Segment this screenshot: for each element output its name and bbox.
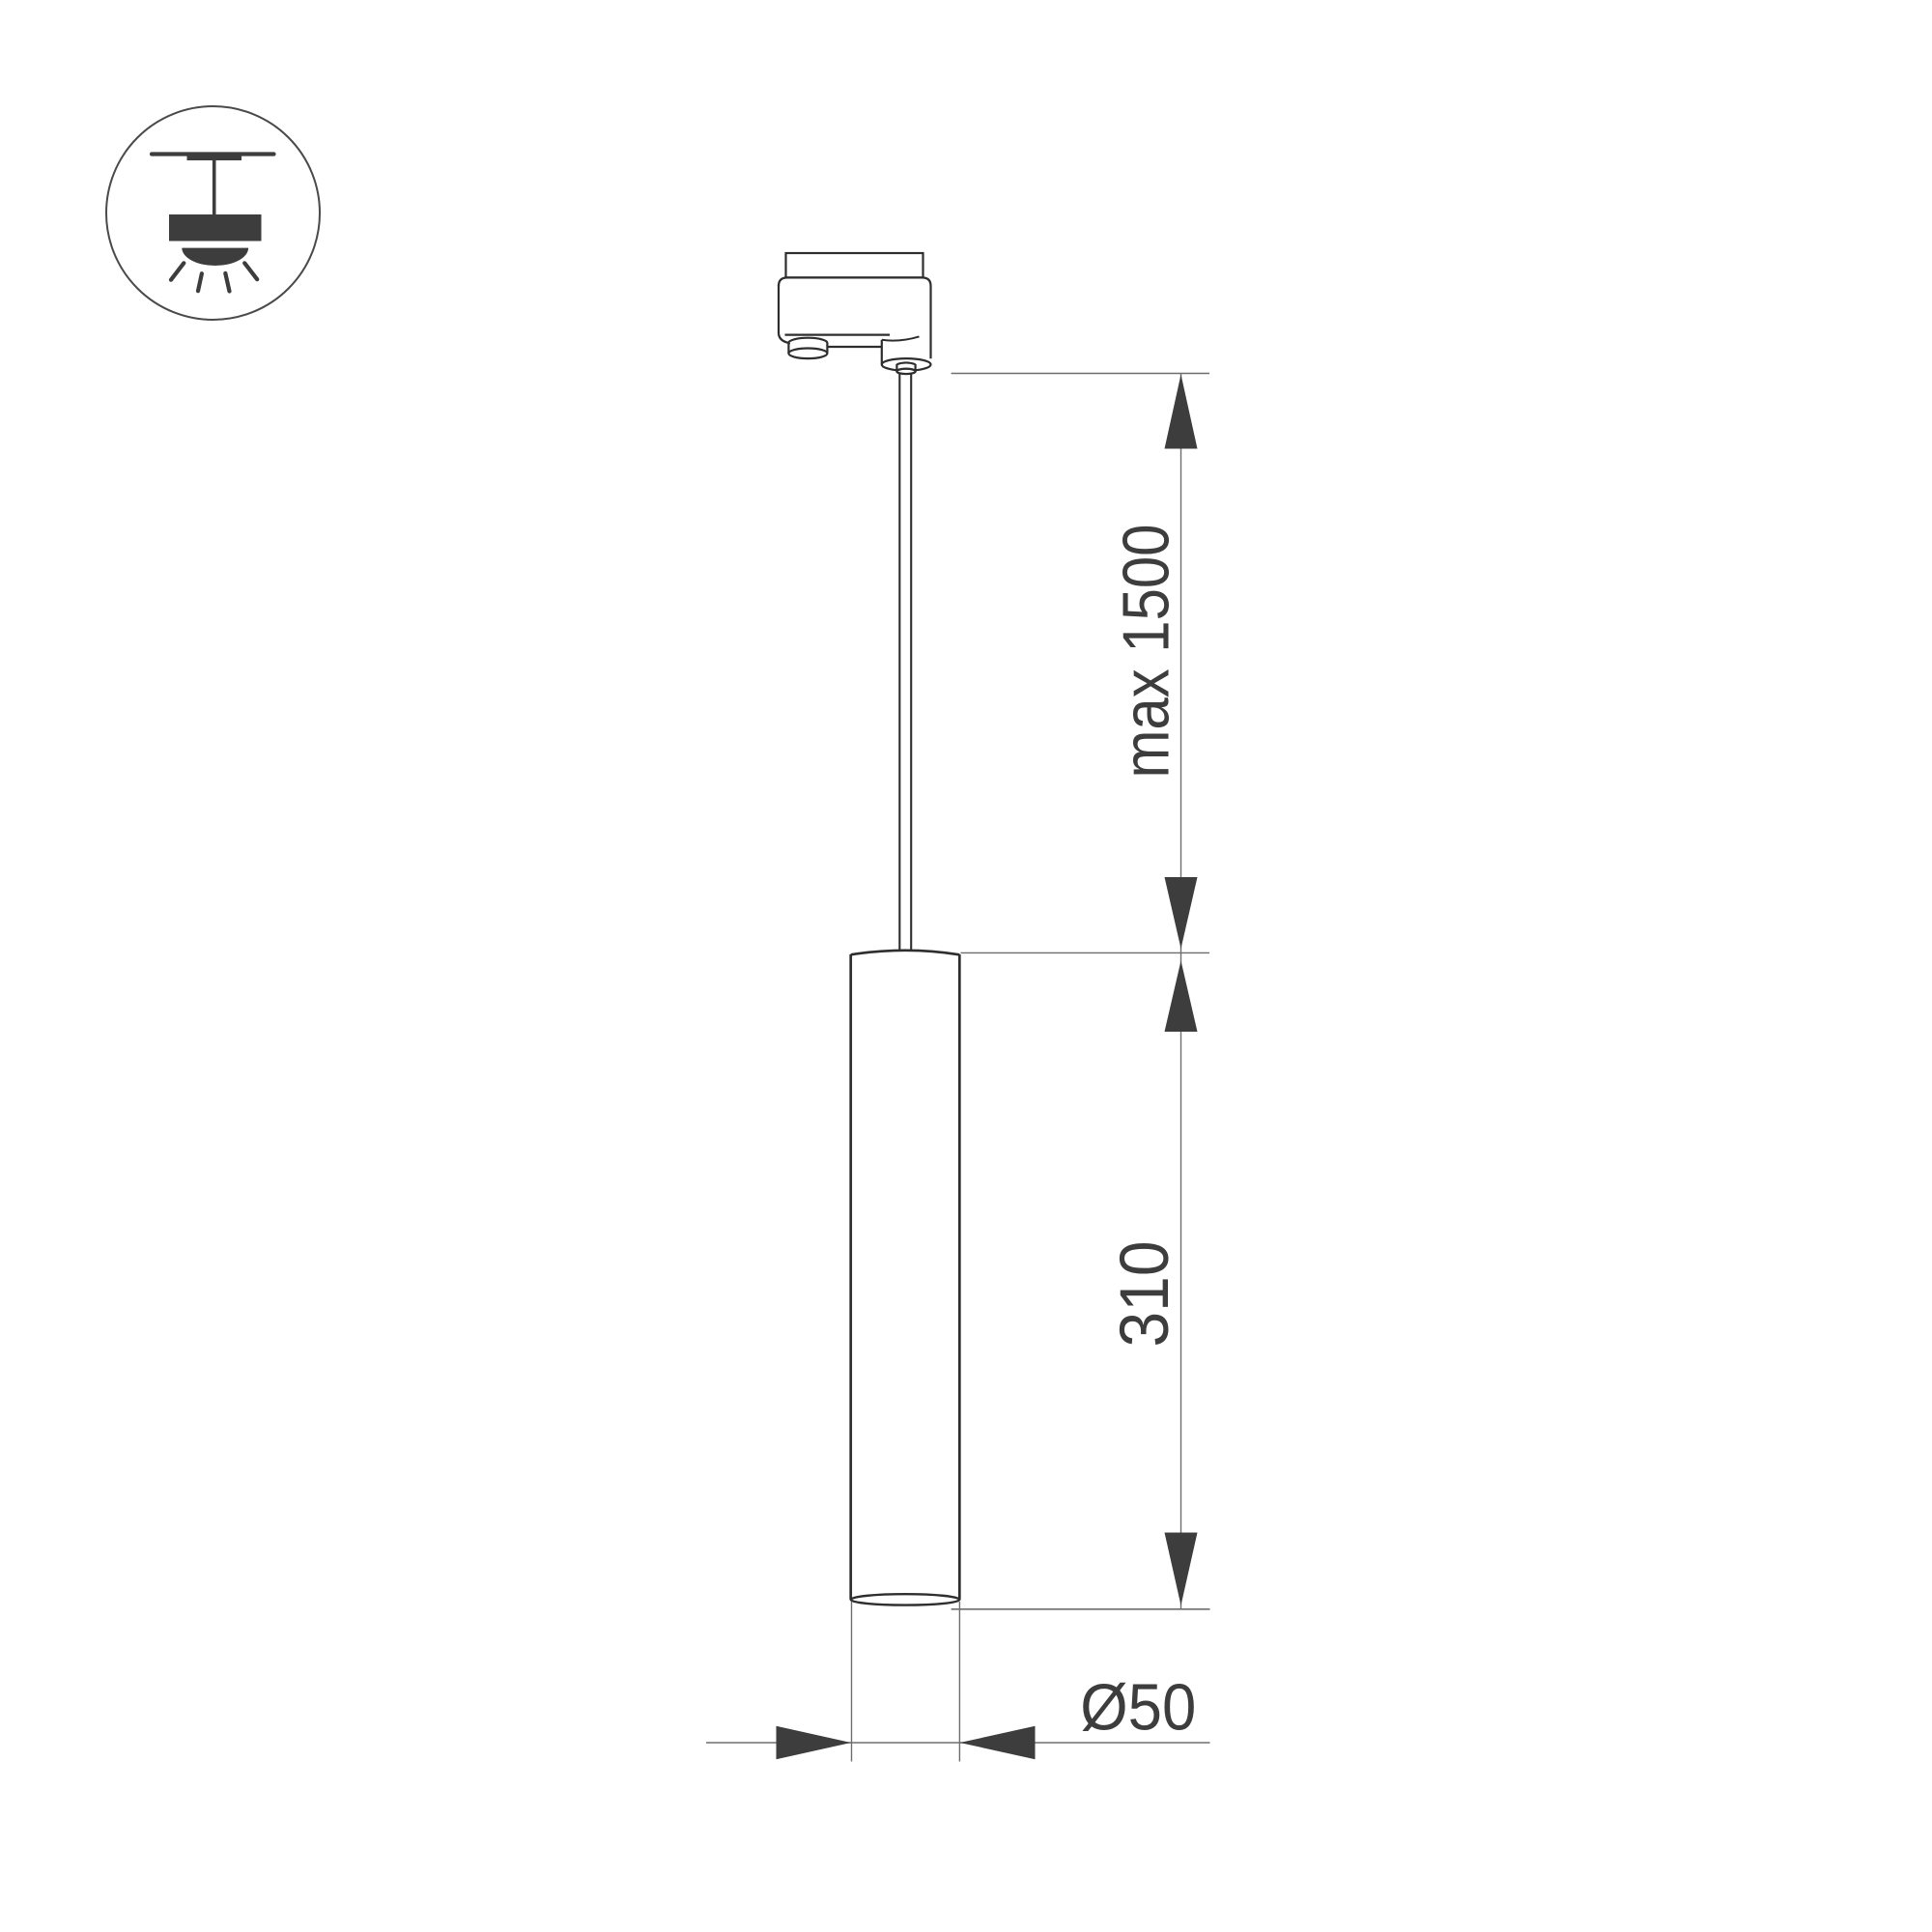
svg-text:max 1500: max 1500 bbox=[1109, 525, 1182, 779]
svg-text:310: 310 bbox=[1107, 1241, 1183, 1348]
svg-text:Ø50: Ø50 bbox=[1080, 1671, 1196, 1745]
